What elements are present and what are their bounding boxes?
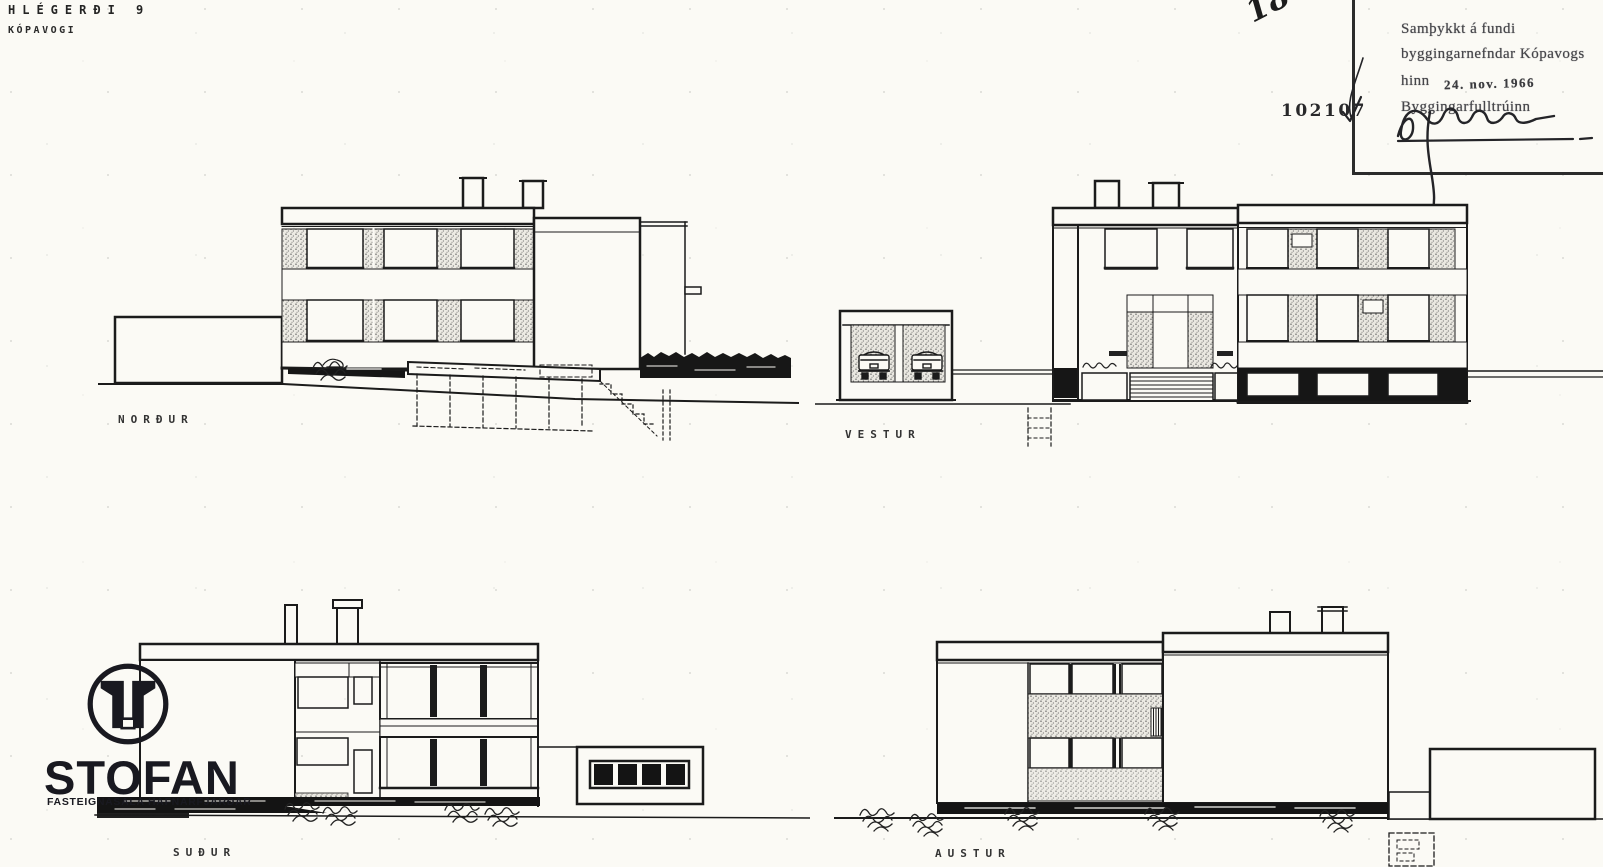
east-elevation-label: AUSTUR (935, 847, 1011, 860)
checkmark-icon (1343, 97, 1361, 121)
stofan-subtitle: FASTEIGNASALA HAFNARFJARÐAR (47, 796, 252, 808)
project-title: HLÉGERÐI 9 (8, 3, 150, 17)
stofan-logo-icon (86, 662, 170, 746)
south-elevation-drawing (85, 595, 810, 867)
scanned-drawing-page: HLÉGERÐI 9 KÓPAVOGI 186/66 102107 Samþyk… (0, 0, 1603, 867)
project-location: KÓPAVOGI (8, 25, 76, 36)
west-elevation-drawing (815, 168, 1603, 460)
west-elevation-label: VESTUR (845, 428, 921, 441)
north-elevation-label: NORÐUR (118, 413, 194, 426)
north-elevation-drawing (95, 168, 800, 458)
east-elevation-drawing (815, 590, 1603, 867)
south-elevation-label: SUÐUR (173, 846, 236, 859)
